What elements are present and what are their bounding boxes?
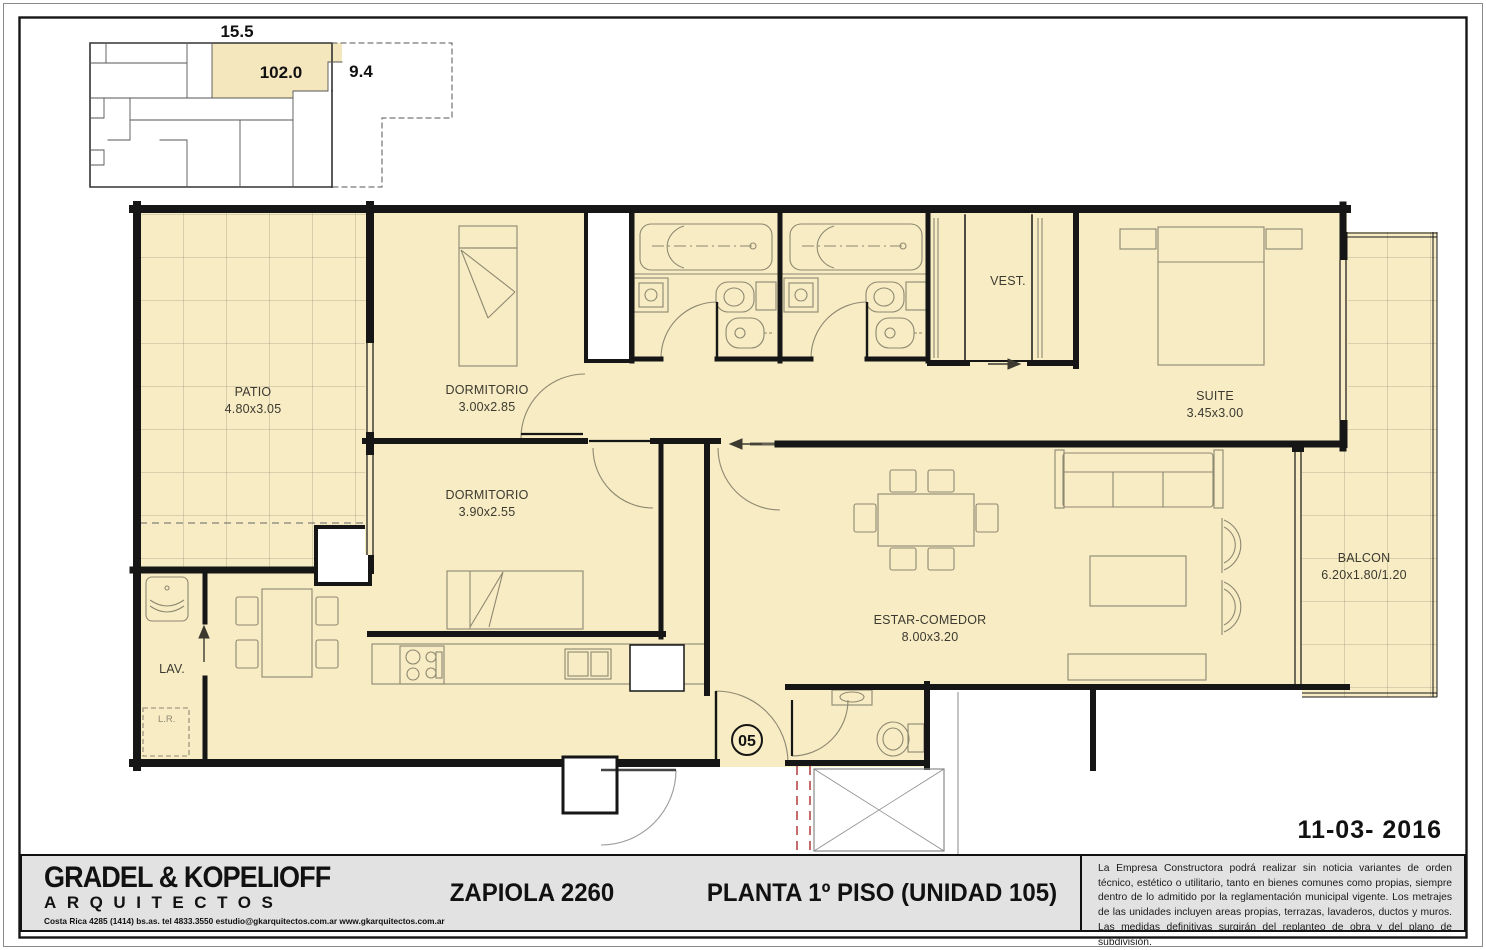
key-plan-dim-top: 15.5 (220, 22, 253, 41)
unit-number-badge: 05 (732, 725, 762, 755)
estar-label: ESTAR-COMEDOR (874, 613, 987, 627)
firm-contact: Costa Rica 4285 (1414) bs.as. tel 4833.3… (44, 916, 384, 926)
drawing-sheet: 15.5 102.0 9.4 (0, 0, 1486, 950)
drawing-date: 11-03- 2016 (1140, 816, 1442, 845)
floor-plan-drawing: 15.5 102.0 9.4 (0, 0, 1486, 950)
suite-dims: 3.45x3.00 (1187, 406, 1244, 420)
plan-title: PLANTA 1º PISO (UNIDAD 105) (671, 856, 1093, 930)
dormitorio2-label: DORMITORIO (445, 488, 528, 502)
balcon-dims: 6.20x1.80/1.20 (1321, 568, 1407, 582)
dormitorio1-label: DORMITORIO (445, 383, 528, 397)
disclaimer-text: La Empresa Constructora podrá realizar s… (1080, 856, 1464, 930)
floor-plan: 05 PATIO 4.80x3.05 DORMITORIO 3.00x2.85 … (133, 205, 1437, 858)
unit-number: 05 (738, 733, 756, 750)
project-address: ZAPIOLA 2260 (412, 856, 652, 930)
estar-dims: 8.00x3.20 (902, 630, 959, 644)
firm-name: GRADEL & KOPELIOFF (44, 861, 350, 895)
lavadero-label: LAV. (159, 662, 185, 676)
key-plan-area: 102.0 (260, 63, 303, 82)
title-bar: GRADEL & KOPELIOFF ARQUITECTOS Costa Ric… (20, 854, 1466, 932)
vestidor-label: VEST. (990, 274, 1026, 288)
dormitorio1-dims: 3.00x2.85 (459, 400, 516, 414)
suite-label: SUITE (1196, 389, 1234, 403)
lr-label: L.R. (158, 714, 175, 725)
firm-subtitle: ARQUITECTOS (44, 893, 384, 913)
key-plan-dim-right: 9.4 (349, 62, 373, 81)
patio-label: PATIO (235, 385, 272, 399)
dormitorio2-dims: 3.90x2.55 (459, 505, 516, 519)
elevator-shaft-dashed (797, 766, 810, 852)
balcon-label: BALCON (1338, 551, 1391, 565)
key-plan: 15.5 102.0 9.4 (90, 22, 452, 187)
patio-dims: 4.80x3.05 (225, 402, 282, 416)
firm-logo-block: GRADEL & KOPELIOFF ARQUITECTOS Costa Ric… (44, 861, 384, 926)
